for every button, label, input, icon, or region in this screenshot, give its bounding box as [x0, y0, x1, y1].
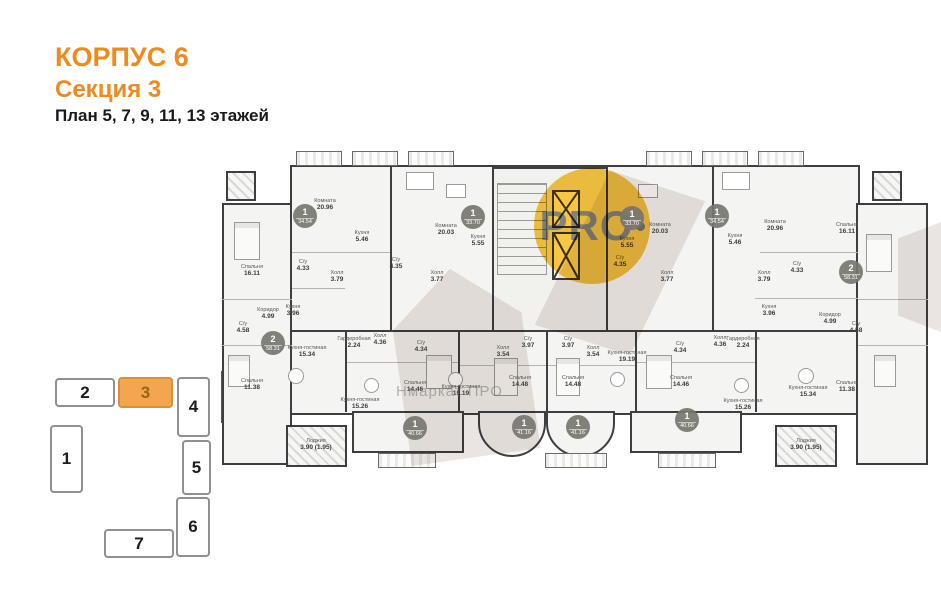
title-floors: План 5, 7, 9, 11, 13 этажей: [55, 106, 269, 126]
keyplan-block-3[interactable]: 3: [118, 377, 173, 408]
furniture-bed: [646, 355, 672, 389]
apartment-badge[interactable]: 141.16: [566, 415, 590, 439]
partition: [858, 345, 928, 346]
partition: [755, 298, 858, 299]
furniture-rtable: [734, 378, 749, 393]
room-label: Спальня16.11: [241, 264, 263, 278]
balcony: [408, 151, 454, 166]
room-label: Кухня3.96: [286, 304, 301, 318]
room-label: Холл3.79: [331, 270, 344, 284]
watermark-text: Нмаркат ПРО: [396, 383, 503, 400]
room-label: Холл3.77: [661, 270, 674, 284]
room-label: Холл4.36: [374, 333, 387, 347]
apartment-badge[interactable]: 133.70: [461, 205, 485, 229]
room-label: Коридор4.99: [257, 307, 279, 321]
apartment-badge[interactable]: 258.31: [839, 260, 863, 284]
furniture-rtable: [288, 368, 304, 384]
furniture-bed: [234, 222, 260, 260]
room-label: Комната20.03: [649, 222, 671, 236]
room-label: Холл4.36: [714, 335, 727, 349]
wall: [546, 332, 548, 412]
room-label: Кухня3.96: [762, 304, 777, 318]
partition: [222, 299, 292, 300]
title-section: Секция 3: [55, 76, 161, 104]
room-label: Коридор4.99: [819, 312, 841, 326]
wall: [390, 167, 392, 331]
room-label: Кухня-гостиная15.34: [789, 385, 828, 399]
apartment-badge[interactable]: 133.70: [620, 206, 644, 230]
room-label: Холл3.54: [497, 345, 510, 359]
balcony: [646, 151, 692, 166]
balcony: [758, 151, 804, 166]
partition: [760, 252, 858, 253]
room-label: С/у4.34: [415, 340, 428, 354]
room-label: Кухня5.46: [728, 233, 743, 247]
room-label: Кухня-гостиная19.19: [608, 350, 647, 364]
balcony: [702, 151, 748, 166]
room-label: Кухня5.46: [355, 230, 370, 244]
balcony: [352, 151, 398, 166]
room-label: С/у4.35: [390, 257, 403, 271]
furniture-rtable: [610, 372, 625, 387]
room-label: Спальня14.48: [509, 375, 531, 389]
title-building: КОРПУС 6: [55, 42, 189, 73]
room-label: С/у4.34: [674, 341, 687, 355]
furniture-bed: [874, 355, 896, 387]
room-label: С/у4.58: [850, 321, 863, 335]
balcony: [545, 453, 607, 468]
room-label: Лоджия3.90 (1.95): [790, 438, 821, 452]
furniture-table: [722, 172, 750, 190]
keyplan-block-4[interactable]: 4: [177, 377, 210, 437]
furniture-table: [406, 172, 434, 190]
keyplan-block-5[interactable]: 5: [182, 440, 211, 495]
room-label: Холл3.79: [758, 270, 771, 284]
balcony: [226, 171, 256, 201]
room-label: Спальня14.48: [562, 375, 584, 389]
room-label: Кухня-гостиная15.34: [288, 345, 327, 359]
apartment-badge[interactable]: 140.66: [403, 416, 427, 440]
room-label: С/у4.33: [297, 259, 310, 273]
apartment-badge[interactable]: 141.16: [512, 415, 536, 439]
room-label: Спальня11.38: [836, 380, 858, 394]
room-label: Гардеробная2.24: [337, 336, 370, 350]
furniture-rtable: [798, 368, 814, 384]
balcony: [296, 151, 342, 166]
page: КОРПУС 6 Секция 3 План 5, 7, 9, 11, 13 э…: [0, 0, 941, 600]
room-label: Лоджия3.90 (1.95): [300, 438, 331, 452]
furniture-table: [446, 184, 466, 198]
room-label: Спальня16.11: [836, 222, 858, 236]
room-label: Спальня14.46: [670, 375, 692, 389]
furniture-rtable: [364, 378, 379, 393]
room-label: С/у3.97: [522, 336, 535, 350]
room-label: Комната20.96: [314, 198, 336, 212]
room-label: Комната20.96: [764, 219, 786, 233]
apartment-badge[interactable]: 258.31: [261, 331, 285, 355]
keyplan-block-7[interactable]: 7: [104, 529, 174, 558]
apartment-badge[interactable]: 140.66: [675, 408, 699, 432]
room-label: Холл3.77: [431, 270, 444, 284]
room-label: С/у4.58: [237, 321, 250, 335]
balcony: [658, 453, 716, 468]
room-label: Спальня11.38: [241, 378, 263, 392]
partition: [292, 252, 390, 253]
apartment-badge[interactable]: 134.54: [293, 204, 317, 228]
wall: [712, 167, 714, 331]
apartment-badge[interactable]: 134.54: [705, 204, 729, 228]
room-label: Холл3.54: [587, 345, 600, 359]
keyplan-block-1[interactable]: 1: [50, 425, 83, 493]
watermark-edge-shape: [898, 222, 941, 332]
room-label: Кухня-гостиная15.26: [724, 398, 763, 412]
partition: [292, 288, 345, 289]
balcony: [872, 171, 902, 201]
keyplan-block-6[interactable]: 6: [176, 497, 210, 557]
room-label: Комната20.03: [435, 223, 457, 237]
room-label: Кухня-гостиная15.26: [341, 397, 380, 411]
room-label: С/у4.33: [791, 261, 804, 275]
room-label: Гардеробная2.24: [726, 336, 759, 350]
room-label: Кухня5.55: [471, 234, 486, 248]
room-label: С/у3.97: [562, 336, 575, 350]
keyplan-block-2[interactable]: 2: [55, 378, 115, 407]
furniture-bed: [866, 234, 892, 272]
